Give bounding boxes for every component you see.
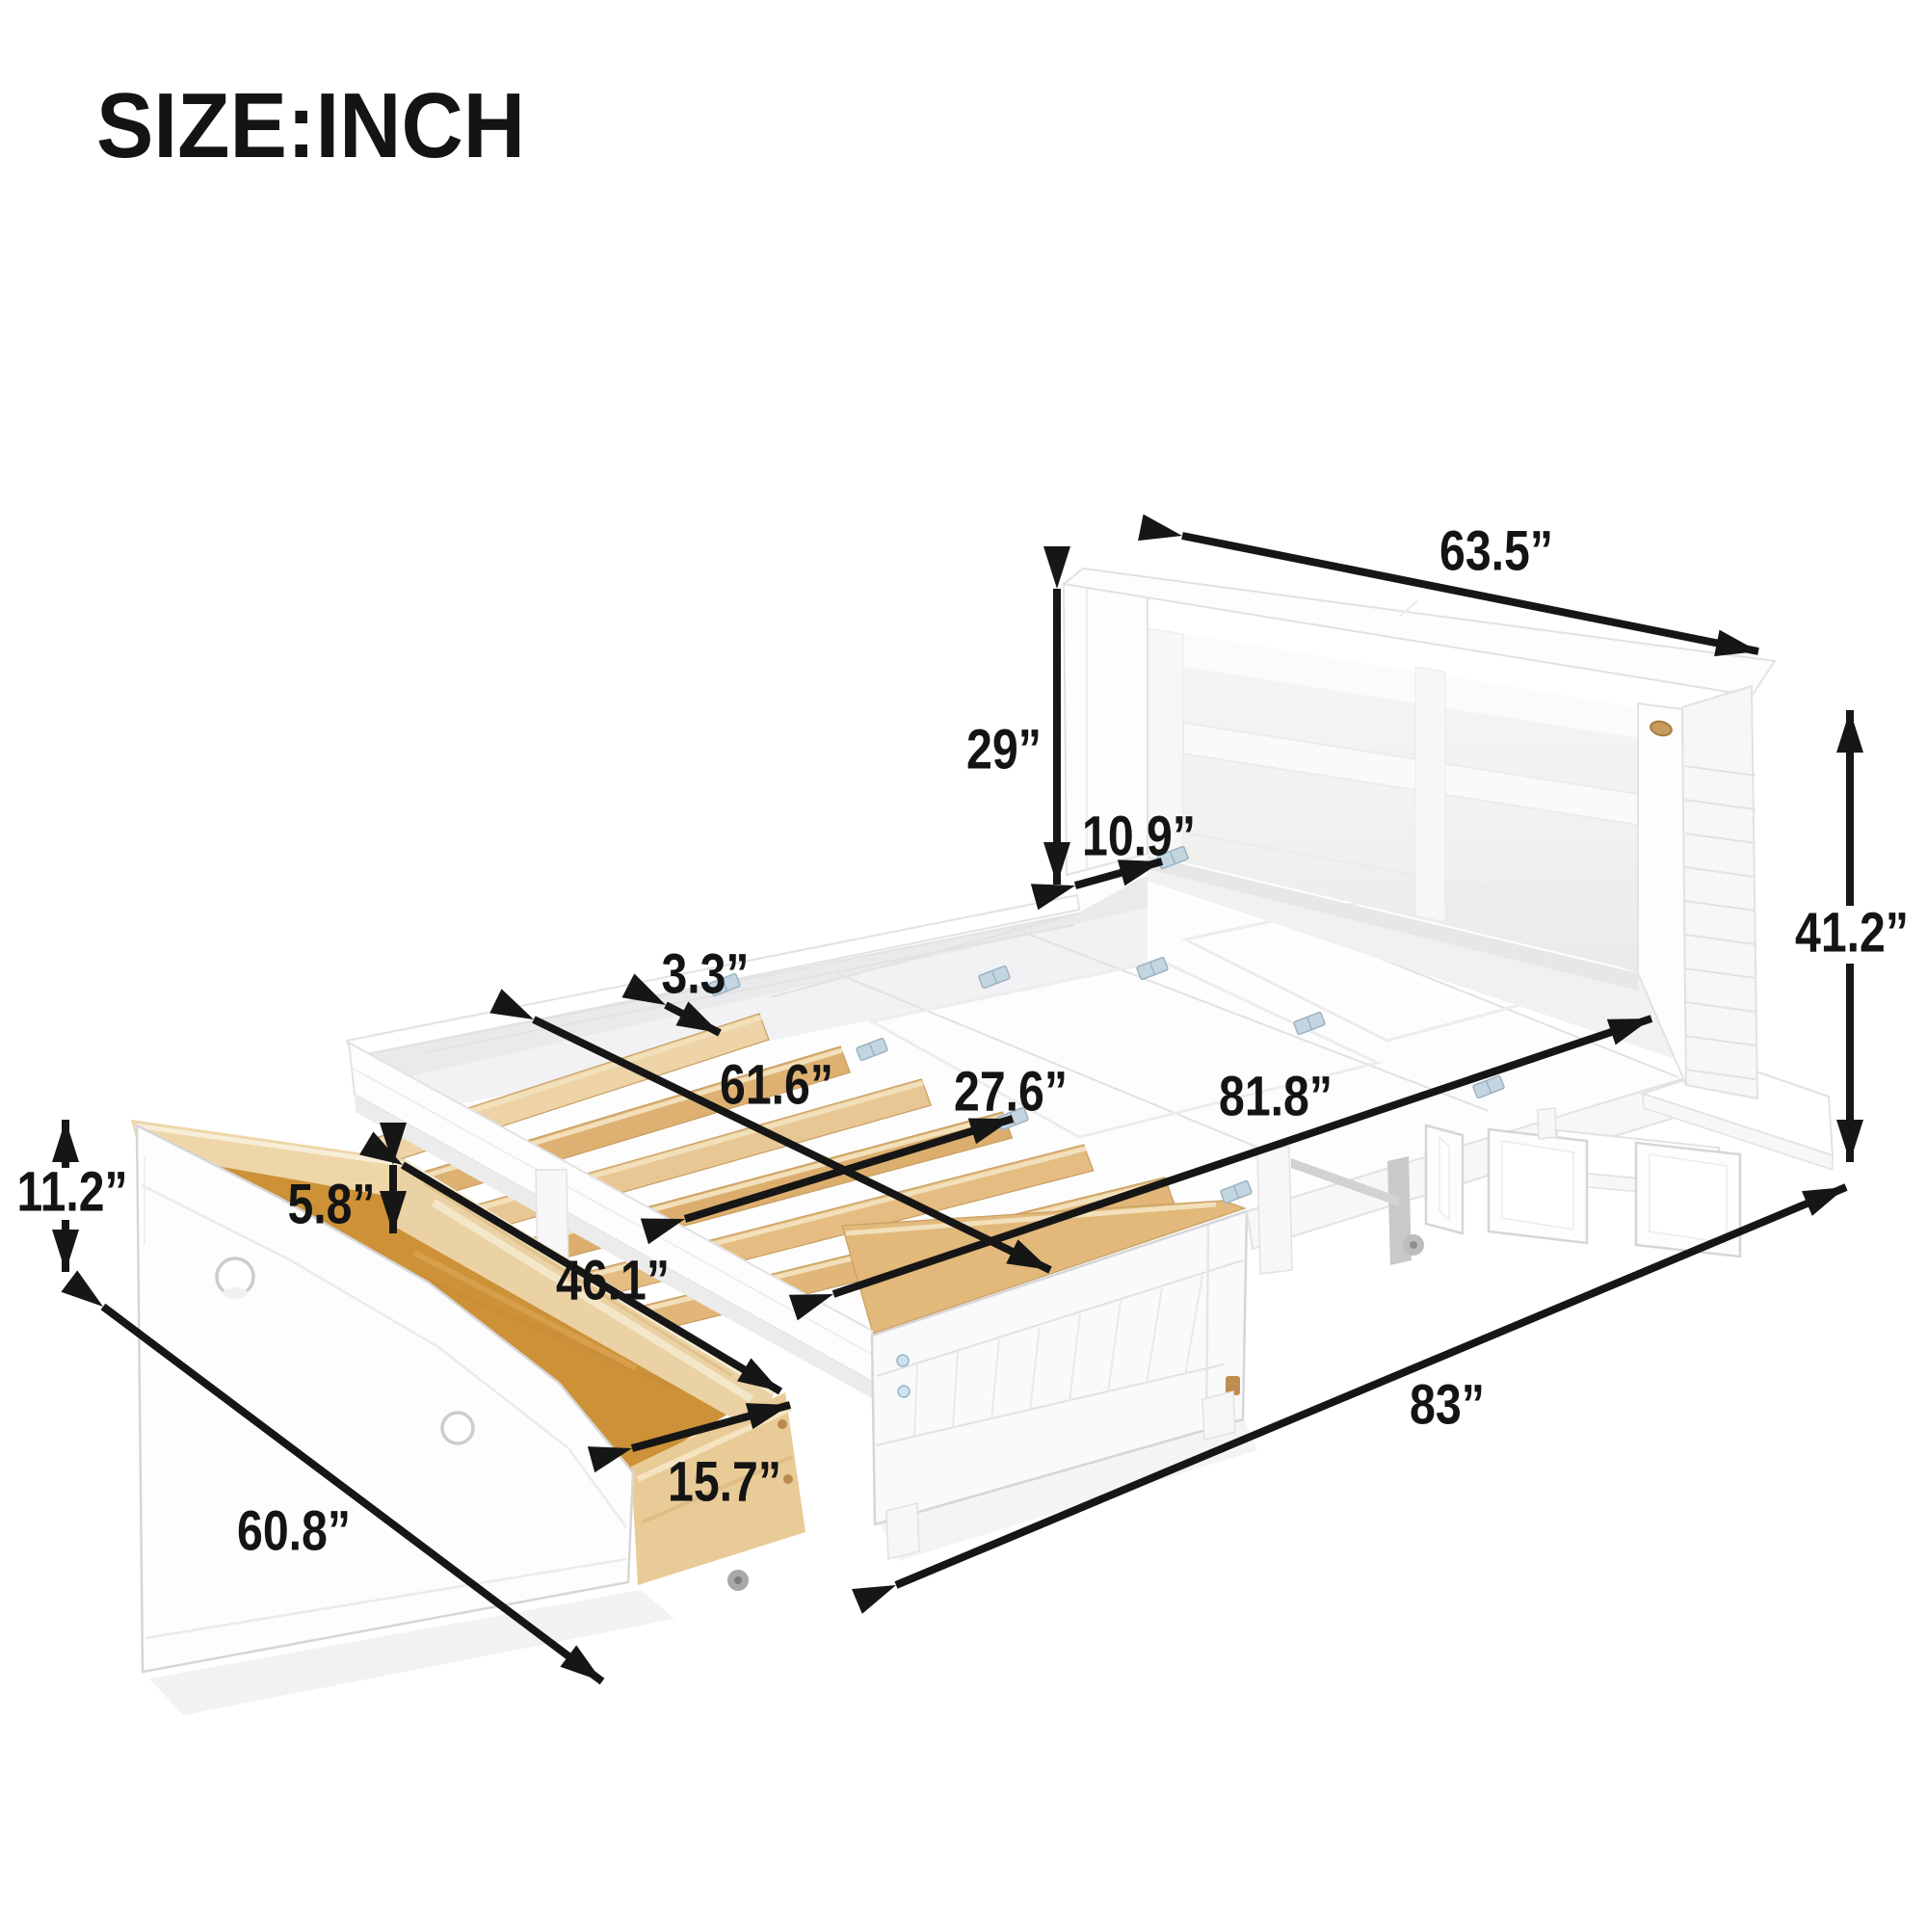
- svg-text:29”: 29”: [966, 719, 1042, 781]
- svg-text:83”: 83”: [1410, 1374, 1485, 1437]
- svg-text:5.8”: 5.8”: [288, 1174, 376, 1236]
- svg-text:46.1”: 46.1”: [556, 1250, 670, 1312]
- svg-text:63.5”: 63.5”: [1439, 520, 1553, 583]
- svg-text:10.9”: 10.9”: [1082, 806, 1196, 868]
- svg-text:11.2”: 11.2”: [17, 1161, 128, 1224]
- svg-text:SIZE:INCH: SIZE:INCH: [96, 74, 525, 177]
- svg-text:60.8”: 60.8”: [237, 1500, 351, 1563]
- svg-text:27.6”: 27.6”: [954, 1061, 1068, 1124]
- svg-text:61.6”: 61.6”: [720, 1054, 833, 1117]
- svg-text:41.2”: 41.2”: [1795, 902, 1909, 965]
- svg-text:3.3”: 3.3”: [662, 943, 750, 1006]
- svg-text:15.7”: 15.7”: [668, 1451, 781, 1514]
- svg-text:81.8”: 81.8”: [1219, 1066, 1333, 1128]
